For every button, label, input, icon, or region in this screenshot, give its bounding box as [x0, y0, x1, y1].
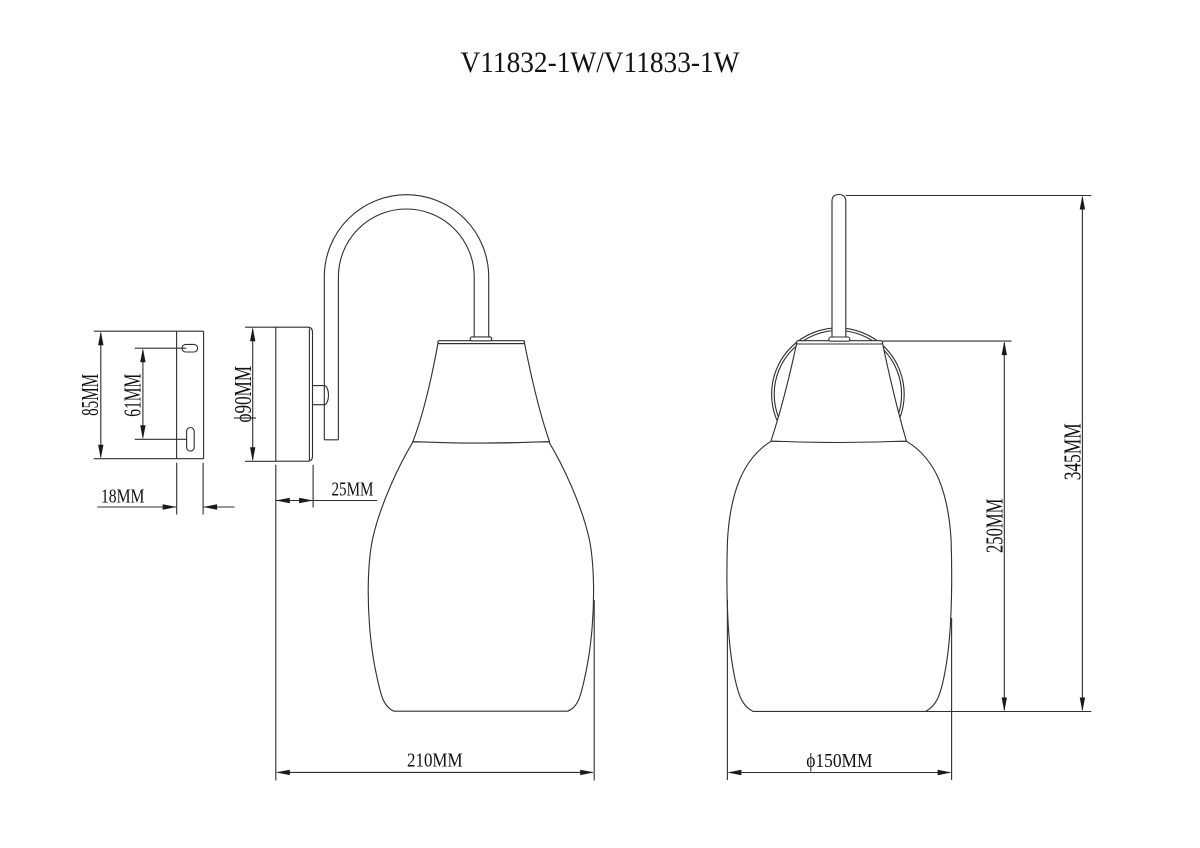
svg-text:345MM: 345MM — [1060, 423, 1087, 480]
svg-text:25MM: 25MM — [332, 479, 374, 500]
svg-text:ϕ150MM: ϕ150MM — [806, 751, 872, 772]
svg-text:V11832-1W/V11833-1W: V11832-1W/V11833-1W — [461, 47, 740, 79]
svg-text:61MM: 61MM — [119, 374, 146, 417]
svg-text:210MM: 210MM — [407, 751, 463, 772]
svg-text:250MM: 250MM — [981, 498, 1008, 553]
svg-text:18MM: 18MM — [101, 486, 145, 507]
svg-text:85MM: 85MM — [77, 374, 104, 416]
svg-text:ϕ90MM: ϕ90MM — [230, 366, 257, 423]
